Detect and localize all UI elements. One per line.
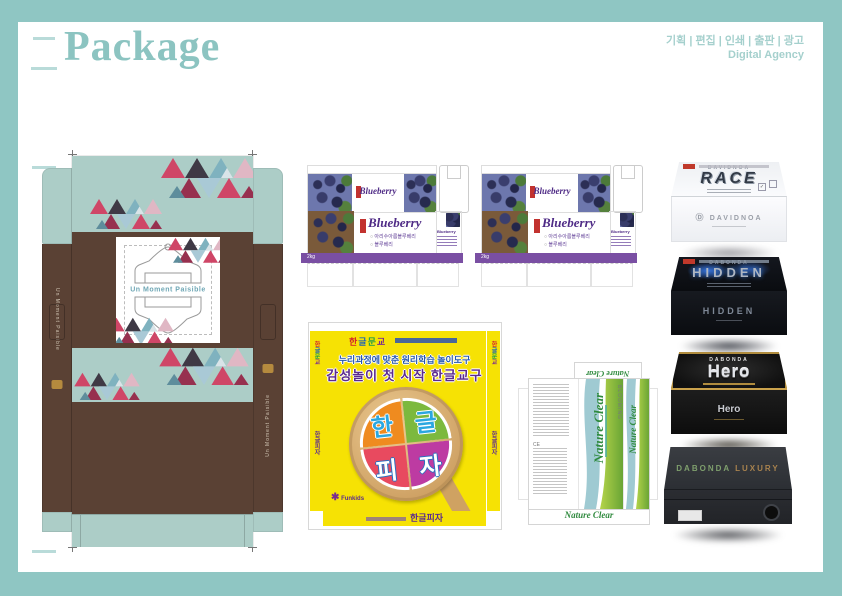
spec-checkboxes: ✓ [755, 180, 777, 191]
bottom-flap-outline [307, 263, 353, 287]
agency-info: 기획 | 편집 | 인쇄 | 출판 | 광고 Digital Agency [666, 34, 804, 62]
blueberry-bowl-photo [308, 211, 354, 253]
box-front-face: Ⓓ DAVIDNOA [671, 197, 787, 242]
main-strip: Blueberry 아리수아름블루베리 블루베리 [481, 211, 611, 254]
pizza-slices: 한 글 피 자 [355, 393, 456, 494]
triangle-cluster [159, 348, 249, 385]
red-label-icon [683, 164, 695, 169]
flap-text: 한글피자 [489, 431, 498, 455]
handle-cutout [260, 304, 276, 340]
fine-print-lines [533, 384, 569, 436]
slice-magenta: 자 [407, 440, 456, 489]
side-panel: Blueberry [609, 211, 636, 255]
brand-name: DABONDA [676, 464, 731, 473]
left-flap: 한글문교 한글피자 [310, 331, 323, 511]
right-flap: 한글문교 한글피자 [487, 331, 500, 511]
left-tick-bottom [32, 550, 56, 553]
purple-stripe: 2kg [475, 253, 637, 263]
footer-title: 한글피자 [410, 513, 443, 523]
blueberry-dieline-2: Blueberry Blueberry 아리수아름블루베리 블루베리 Blueb… [471, 165, 645, 288]
brand-name: BLOOMING [616, 385, 622, 420]
option-item: 블루베리 [370, 241, 416, 249]
brown-band-window: Un Moment Paisible [72, 232, 253, 348]
box-top-face: DABONDA LUXURY [664, 447, 792, 490]
slice-orange: 한 [355, 398, 404, 447]
race-box-photo: DAVIDNOA RACE ✓ Ⓓ DAVIDNOA [671, 162, 787, 261]
reflection [672, 527, 784, 543]
bottom-flap-outline [527, 263, 591, 287]
side-title: Blueberry [611, 229, 630, 234]
bottom-flap-outline [353, 263, 417, 287]
front-tagline-bar [716, 320, 742, 321]
blueberry-dieline-1: Blueberry Blueberry 아리수아름블루베리 블루베리 Blueb… [297, 165, 471, 288]
portfolio-page: Package 기획 | 편집 | 인쇄 | 출판 | 광고 Digital A… [0, 0, 842, 596]
frame-left [0, 0, 18, 596]
bottle-flap-outline [613, 165, 643, 213]
white-sticker [678, 510, 702, 521]
frame-top [0, 0, 842, 22]
red-label-icon [683, 259, 695, 264]
main-panel: Un Moment Paisible [72, 156, 253, 546]
main-strip: Blueberry 아리수아름블루베리 블루베리 [307, 211, 437, 254]
die-cut-window: Un Moment Paisible [116, 237, 220, 343]
package-title-text: Un Moment Paisible [116, 287, 220, 294]
box-top-face: DAVIDNOA RACE ✓ [671, 162, 787, 197]
crown-logo-icon [263, 364, 274, 373]
product-title: LUXURY [735, 464, 780, 473]
blueberry-photo-small [446, 213, 460, 227]
crown-logo-icon [52, 380, 63, 389]
agency-name: Digital Agency [666, 48, 804, 62]
luxury-box-photo: DABONDA LUXURY [664, 447, 792, 543]
flap-text: 한글문교 [312, 341, 321, 365]
side-panel: Blueberry [435, 211, 462, 255]
triangle-cluster [168, 237, 220, 263]
weight-label: 2kg [307, 254, 315, 260]
mint-band-middle [72, 348, 253, 402]
side-panel: Nature Clear [623, 379, 649, 509]
bottle-flap-outline [439, 165, 469, 213]
fine-print-lines [437, 236, 457, 248]
hangul-pizza-box: 한글문교 한글피자 한글문교 한글피자 한글문교 누리과정에 맞춘 원리학습 놀… [308, 322, 502, 530]
bottom-flaps [72, 514, 253, 547]
blueberry-photo-small [620, 213, 634, 227]
fine-print-lines [707, 189, 751, 194]
fine-print-bar [366, 517, 406, 521]
title-dash-icon [31, 37, 58, 70]
product-title: HIDDEN [692, 266, 766, 280]
weight-label: 2kg [481, 254, 489, 260]
hidden-box-photo: DABONDA HIDDEN HIDDEN [671, 257, 787, 354]
side-title: Blueberry [437, 229, 456, 234]
mint-band-top [72, 156, 253, 232]
ingredients-panel: CE [529, 379, 578, 509]
box-top-face: DABONDA Hero [671, 352, 787, 388]
brand-title-line: DABONDA LUXURY [676, 464, 779, 473]
round-badge-icon [763, 504, 780, 521]
fine-print-bar [699, 165, 769, 168]
bottom-flap-outline [481, 263, 527, 287]
product-title: RACE [700, 171, 757, 187]
triangle-cluster [161, 156, 253, 198]
blueberry-title: Blueberry [368, 215, 421, 231]
blueberry-photo [308, 174, 352, 212]
option-list: 아리수아름블루베리 블루베리 [544, 233, 590, 249]
bottom-flap-outline [591, 263, 633, 287]
nature-clear-dieline: Nature Clear CE Nature [518, 362, 658, 524]
option-item: 아리수아름블루베리 [544, 233, 590, 241]
flap-text: 한글피자 [312, 431, 321, 455]
lid-seam [664, 499, 792, 500]
bottom-flap: Nature Clear [528, 508, 650, 525]
fine-print-lines [533, 448, 567, 496]
blueberry-branch-photo [578, 174, 610, 212]
product-title: Hero [708, 363, 751, 380]
blueberry-branch-photo [404, 174, 436, 212]
front-logo: Ⓓ DAVIDNOA [695, 212, 762, 223]
blueberry-photo [482, 174, 526, 212]
front-title: HIDDEN [703, 306, 756, 316]
top-strip: Blueberry [481, 173, 611, 213]
product-title-small: Nature Clear [628, 405, 638, 454]
triangle-cluster [74, 370, 140, 400]
option-list: 아리수아름블루베리 블루베리 [370, 233, 416, 249]
red-seal-icon [360, 219, 366, 233]
frame-right [823, 0, 842, 596]
moment-paisible-dieline: Un Moment Paisible [42, 156, 283, 546]
red-seal-icon [534, 219, 540, 233]
fine-print-lines [611, 236, 631, 248]
front-tagline-bar [714, 419, 744, 420]
body: CE Nature Clear BLOOMING [528, 378, 650, 510]
handle-cutout [49, 304, 65, 340]
blueberry-bowl-photo [482, 211, 528, 253]
box-top-face: DABONDA HIDDEN [671, 257, 787, 291]
left-flap: Un Moment Paisible [42, 168, 72, 530]
triangle-cluster [90, 196, 162, 229]
gold-rule [703, 383, 755, 385]
flap-text: Un Moment Paisible [265, 394, 271, 457]
star-icon: ✱ [331, 492, 339, 503]
blueberry-script: Blueberry [352, 186, 404, 196]
hero-box-photo: DABONDA Hero Hero [671, 352, 787, 453]
front-panel: 한글문교 누리과정에 맞춘 원리학습 놀이도구 감성놀이 첫 시작 한글교구 한… [323, 331, 486, 511]
fine-print-bar [699, 260, 769, 263]
right-flap: Un Moment Paisible [253, 168, 283, 530]
bottom-band: 한글피자 [323, 511, 486, 526]
blueberry-title: Blueberry [542, 215, 595, 231]
subtitle-bar [605, 405, 607, 457]
box-front-face: HIDDEN [671, 291, 787, 335]
agency-services: 기획 | 편집 | 인쇄 | 출판 | 광고 [666, 34, 804, 48]
blueberry-script: Blueberry [526, 186, 578, 196]
bottom-flap-outline [417, 263, 459, 287]
main-panel: Nature Clear BLOOMING [578, 379, 623, 509]
slice-green: 글 [402, 393, 451, 442]
box-front-face [664, 490, 792, 524]
page-title: Package [64, 26, 220, 68]
flap-text: 한글문교 [489, 341, 498, 365]
option-item: 아리수아름블루베리 [370, 233, 416, 241]
front-title: Hero [718, 404, 741, 415]
slice-red: 피 [360, 445, 409, 494]
frame-bottom [0, 572, 842, 596]
d-mark-icon: Ⓓ [695, 213, 709, 222]
brown-band-bottom [72, 402, 253, 514]
maker-logo: ✱ Funkids [331, 492, 364, 503]
fine-print-lines [707, 283, 751, 288]
option-item: 블루베리 [544, 241, 590, 249]
triangle-cluster [116, 315, 174, 343]
purple-stripe: 2kg [301, 253, 463, 263]
box-front-face: Hero [671, 388, 787, 434]
top-strip: Blueberry [307, 173, 437, 213]
front-tagline-bar [712, 226, 746, 227]
